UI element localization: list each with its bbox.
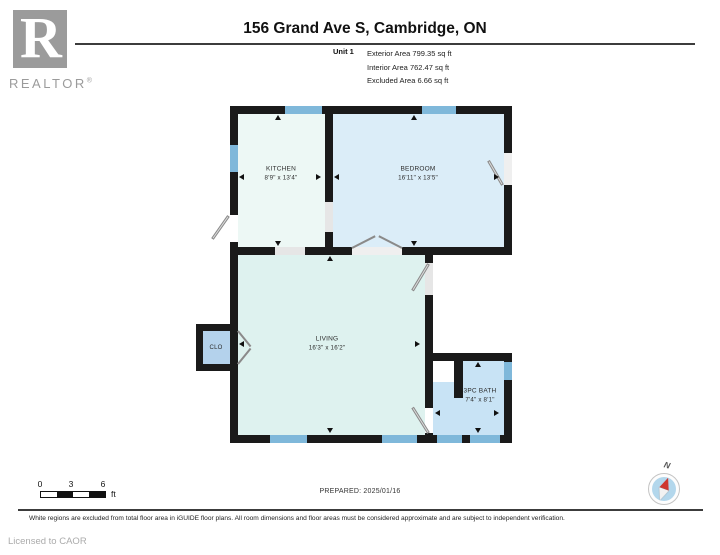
- bath-excluded-region: [433, 361, 454, 382]
- bedroom-double-door-opening: [352, 247, 402, 255]
- prepared-date: PREPARED: 2025/01/16: [260, 488, 460, 495]
- dimension-arrow: [275, 241, 281, 246]
- bath-window-bottom-right: [470, 435, 500, 443]
- exterior-area: Exterior Area 799.35 sq ft: [367, 47, 452, 61]
- kitchen-exterior-door-opening: [230, 215, 238, 242]
- scale-unit: ft: [111, 489, 116, 499]
- dimension-arrow: [475, 428, 481, 433]
- closet-label: CLO: [210, 344, 223, 352]
- bedroom-right-door-opening: [504, 153, 512, 185]
- kitchen-name: KITCHEN: [265, 165, 298, 174]
- bath-window-bottom-left: [437, 435, 462, 443]
- dimension-arrow: [275, 115, 281, 120]
- footer-divider: [18, 509, 703, 511]
- disclaimer-text: White regions are excluded from total fl…: [29, 515, 565, 522]
- compass-icon: [648, 473, 680, 505]
- realtor-logo-icon: R: [13, 10, 67, 68]
- dimension-arrow: [327, 256, 333, 261]
- unit-label: Unit 1: [333, 47, 354, 56]
- bath-name: 3PC BATH: [464, 387, 497, 396]
- dimension-arrow: [316, 174, 321, 180]
- wall-top: [230, 106, 512, 114]
- scale-tick-6: 6: [98, 479, 108, 489]
- scale-tick-3: 3: [66, 479, 76, 489]
- compass-north-label: N: [663, 459, 672, 470]
- dimension-arrow: [494, 174, 499, 180]
- kitchen-label: KITCHEN 8'9" x 13'4": [265, 165, 298, 182]
- living-window-bottom-left: [270, 435, 307, 443]
- bedroom-dims: 16'11" x 13'5": [398, 174, 438, 182]
- dimension-arrow: [239, 174, 244, 180]
- scale-segment: [73, 492, 89, 497]
- kitchen-dims: 8'9" x 13'4": [265, 174, 298, 182]
- kitchen-living-opening: [275, 247, 305, 255]
- scale-tick-0: 0: [35, 479, 45, 489]
- dimension-arrow: [435, 410, 440, 416]
- page-title: 156 Grand Ave S, Cambridge, ON: [75, 20, 655, 38]
- realtor-wordmark: REALTOR®: [9, 76, 92, 91]
- license-text: Licensed to CAOR: [8, 536, 87, 547]
- scale-bar: [40, 491, 106, 498]
- dimension-arrow: [411, 241, 417, 246]
- wall-bath-top: [425, 353, 512, 361]
- header-divider: [75, 43, 695, 45]
- dimension-arrow: [334, 174, 339, 180]
- bedroom-label: BEDROOM 16'11" x 13'5": [398, 165, 438, 182]
- closet-name: CLO: [210, 344, 223, 352]
- living-window-bottom-right: [382, 435, 417, 443]
- registered-mark: ®: [87, 78, 92, 85]
- interior-area: Interior Area 762.47 sq ft: [367, 61, 452, 75]
- kitchen-window-left: [230, 145, 238, 172]
- bath-label: 3PC BATH 7'4" x 8'1": [464, 387, 497, 404]
- dimension-arrow: [415, 341, 420, 347]
- dimension-arrow: [475, 362, 481, 367]
- living-name: LIVING: [309, 335, 346, 344]
- bath-window-right: [504, 362, 512, 380]
- bedroom-window-top: [422, 106, 456, 114]
- dimension-arrow: [239, 341, 244, 347]
- dimension-arrow: [411, 115, 417, 120]
- bedroom-name: BEDROOM: [398, 165, 438, 174]
- dimension-arrow: [494, 410, 499, 416]
- realtor-logo-letter: R: [20, 10, 62, 68]
- bath-dims: 7'4" x 8'1": [464, 396, 497, 404]
- kitchen-window-top: [285, 106, 322, 114]
- scale-segment: [89, 492, 105, 497]
- kitchen-bedroom-opening: [325, 202, 333, 232]
- dimension-arrow: [327, 428, 333, 433]
- excluded-area: Excluded Area 6.66 sq ft: [367, 74, 452, 88]
- scale-segment: [41, 492, 57, 497]
- living-dims: 16'3" x 16'2": [309, 344, 346, 352]
- scale-segment: [57, 492, 73, 497]
- kitchen-exterior-door-leaf: [211, 215, 230, 240]
- wall-left-lower: [230, 255, 238, 443]
- unit-stats: Exterior Area 799.35 sq ft Interior Area…: [367, 47, 452, 88]
- wall-bath-stub: [454, 361, 463, 398]
- floorplan-page: R REALTOR® 156 Grand Ave S, Cambridge, O…: [0, 0, 720, 555]
- closet-wall-bottom: [196, 364, 238, 371]
- living-label: LIVING 16'3" x 16'2": [309, 335, 346, 352]
